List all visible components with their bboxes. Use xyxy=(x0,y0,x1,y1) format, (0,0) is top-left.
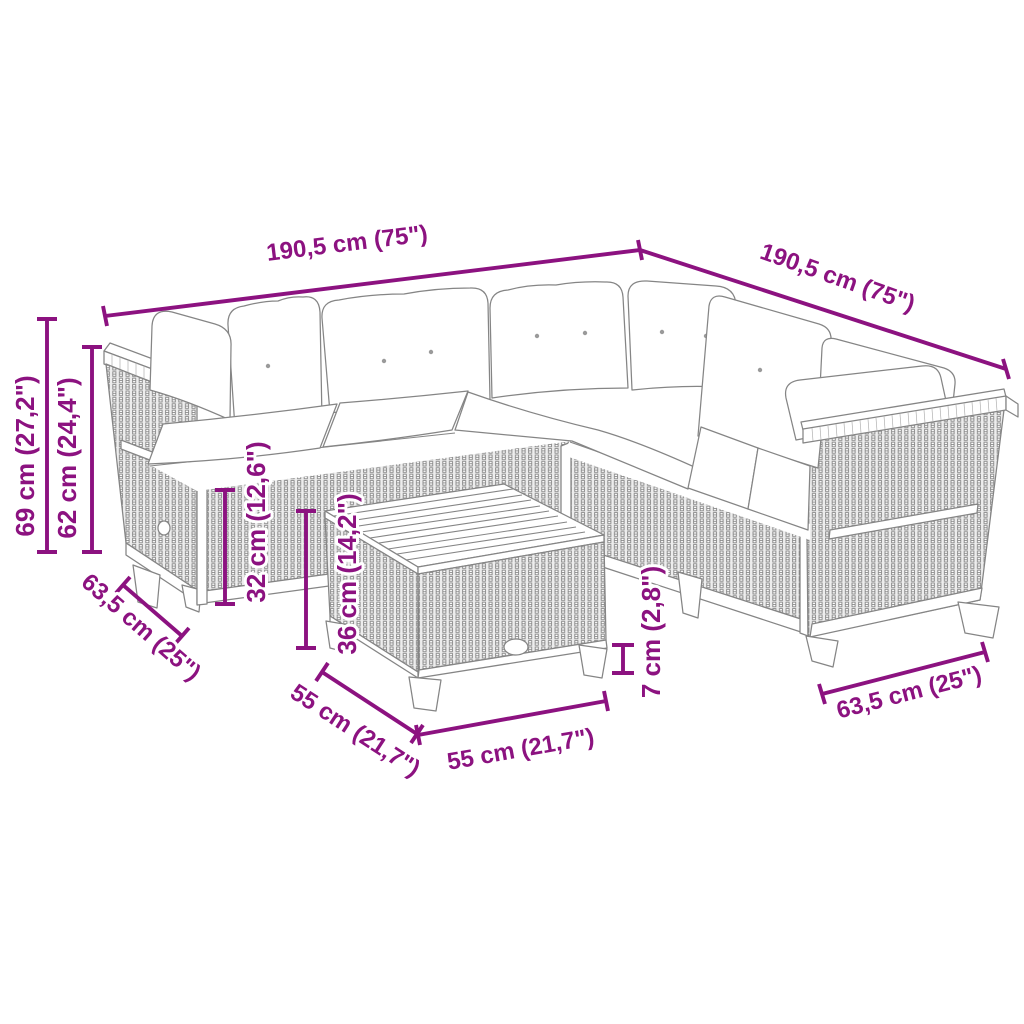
svg-text:69 cm (27,2"): 69 cm (27,2") xyxy=(10,375,40,536)
svg-text:62 cm (24,4"): 62 cm (24,4") xyxy=(52,377,82,538)
svg-text:32 cm (12,6"): 32 cm (12,6") xyxy=(241,441,271,602)
svg-text:7 cm (2,8"): 7 cm (2,8") xyxy=(636,566,666,698)
svg-text:36 cm (14,2"): 36 cm (14,2") xyxy=(332,493,362,654)
